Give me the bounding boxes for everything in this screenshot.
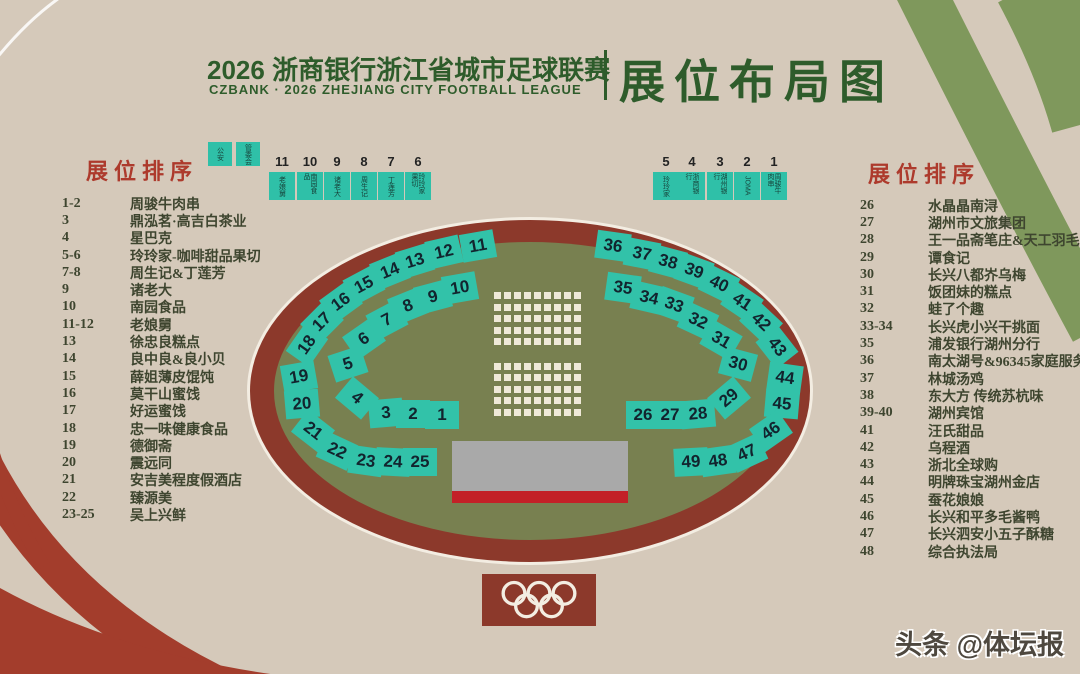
news-watermark: 头条 @体坛报 [895,623,1064,662]
stadium-booth-10[interactable]: 10 [441,271,479,304]
stadium-booth-11[interactable]: 11 [459,229,497,262]
stadium-booths: 1234567891011121314151617181920212223242… [0,0,1080,674]
stadium-booth-35[interactable]: 35 [604,272,642,304]
stadium-booth-49[interactable]: 49 [673,447,708,477]
olympic-rings-panel [482,574,596,626]
olympic-rings-icon [489,578,589,622]
booth-layout-poster: 2026 浙商银行浙江省城市足球联赛 CZBANK · 2026 ZHEJIAN… [0,0,1080,674]
stadium-booth-1[interactable]: 1 [425,401,459,429]
stadium-booth-25[interactable]: 25 [403,448,437,476]
